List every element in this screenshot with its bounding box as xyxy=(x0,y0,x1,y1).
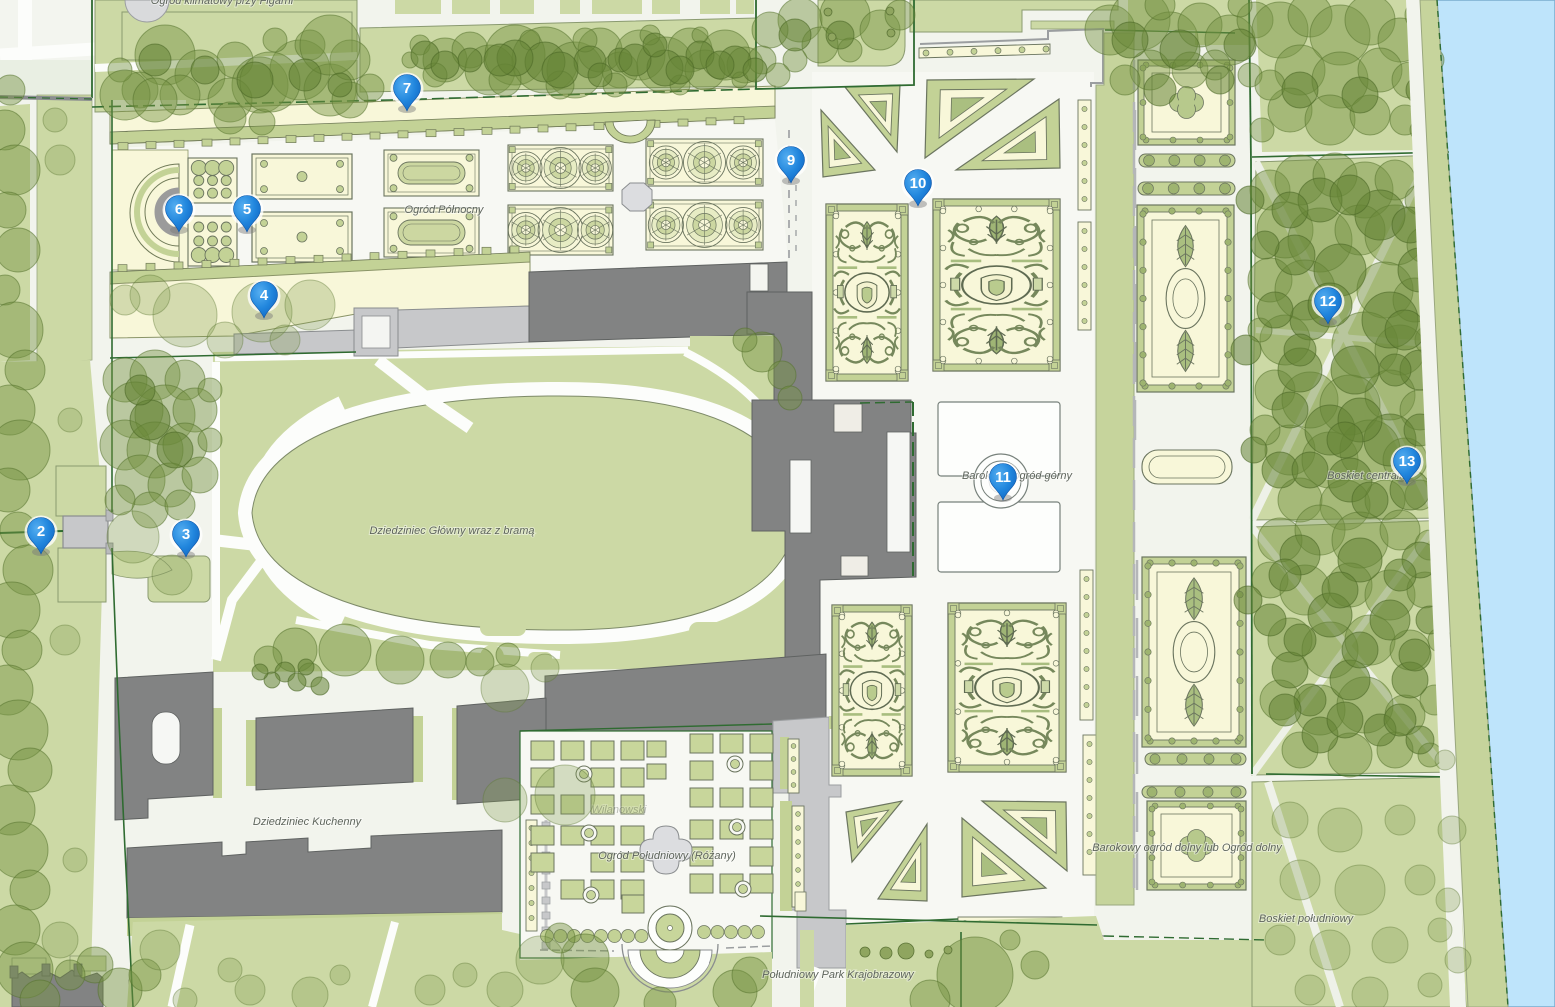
svg-text:Ogród Północny: Ogród Północny xyxy=(405,204,485,216)
svg-text:Ogród klimatowy przy Figarni: Ogród klimatowy przy Figarni xyxy=(151,0,294,7)
svg-text:Południowy Park Krajobrazowy: Południowy Park Krajobrazowy xyxy=(762,969,915,981)
svg-text:Ogród Południowy (Różany): Ogród Południowy (Różany) xyxy=(598,850,736,862)
svg-text:Dziedziniec Główny wraz z bram: Dziedziniec Główny wraz z bramą xyxy=(369,525,534,537)
svg-text:11: 11 xyxy=(995,469,1011,486)
svg-text:3: 3 xyxy=(182,526,190,543)
svg-text:9: 9 xyxy=(787,152,795,169)
svg-text:Dziedziniec Kuchenny: Dziedziniec Kuchenny xyxy=(253,816,363,828)
svg-text:Barokowy ogród dolny lub Ogród: Barokowy ogród dolny lub Ogród dolny xyxy=(1092,842,1283,854)
svg-text:6: 6 xyxy=(175,201,183,218)
svg-text:2: 2 xyxy=(37,523,45,540)
svg-text:13: 13 xyxy=(1399,453,1416,470)
svg-text:Boskiet południowy: Boskiet południowy xyxy=(1259,913,1355,925)
svg-text:7: 7 xyxy=(403,80,411,97)
svg-text:4: 4 xyxy=(260,287,269,304)
svg-text:12: 12 xyxy=(1320,293,1337,310)
svg-text:10: 10 xyxy=(910,175,927,192)
svg-text:5: 5 xyxy=(243,201,251,218)
svg-text:Wilanowski: Wilanowski xyxy=(592,804,647,816)
